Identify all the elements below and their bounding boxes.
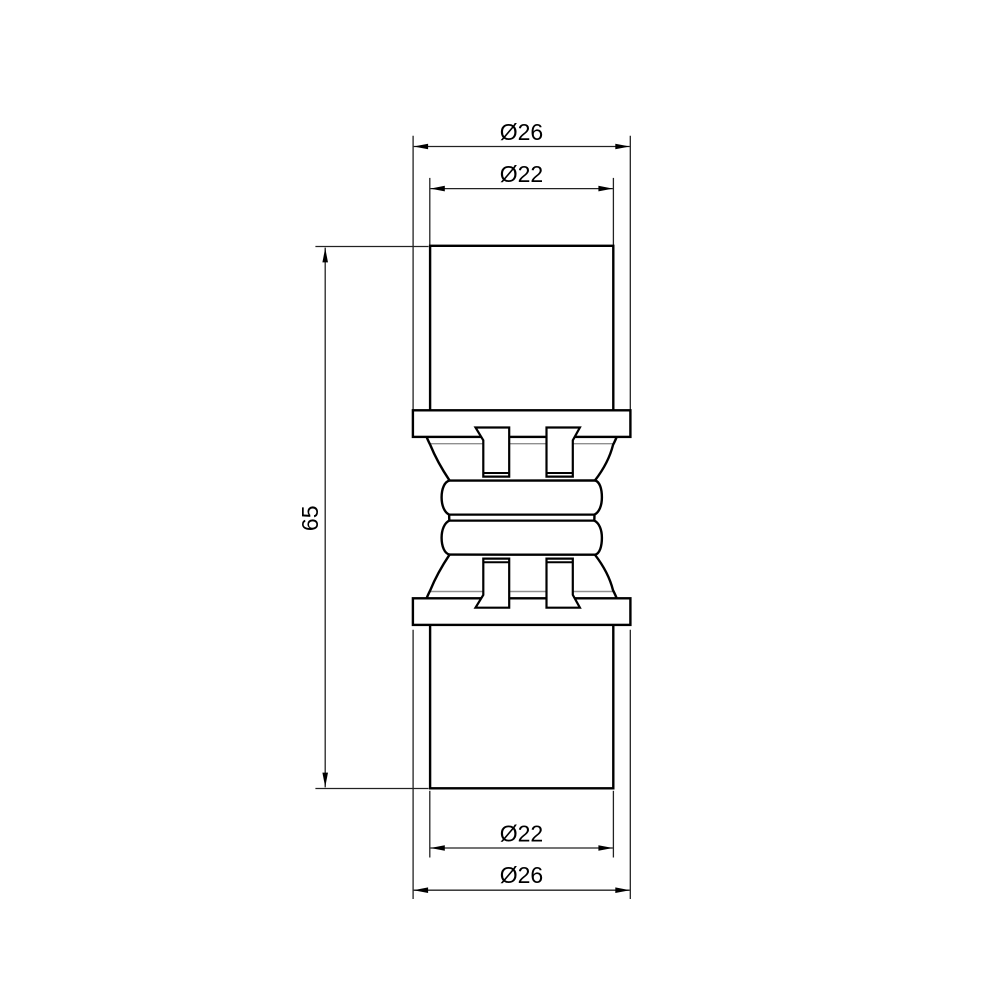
- svg-text:Ø22: Ø22: [500, 820, 543, 846]
- svg-text:65: 65: [297, 506, 323, 532]
- svg-text:Ø22: Ø22: [500, 161, 543, 187]
- svg-text:Ø26: Ø26: [500, 862, 543, 888]
- svg-text:Ø26: Ø26: [500, 119, 543, 145]
